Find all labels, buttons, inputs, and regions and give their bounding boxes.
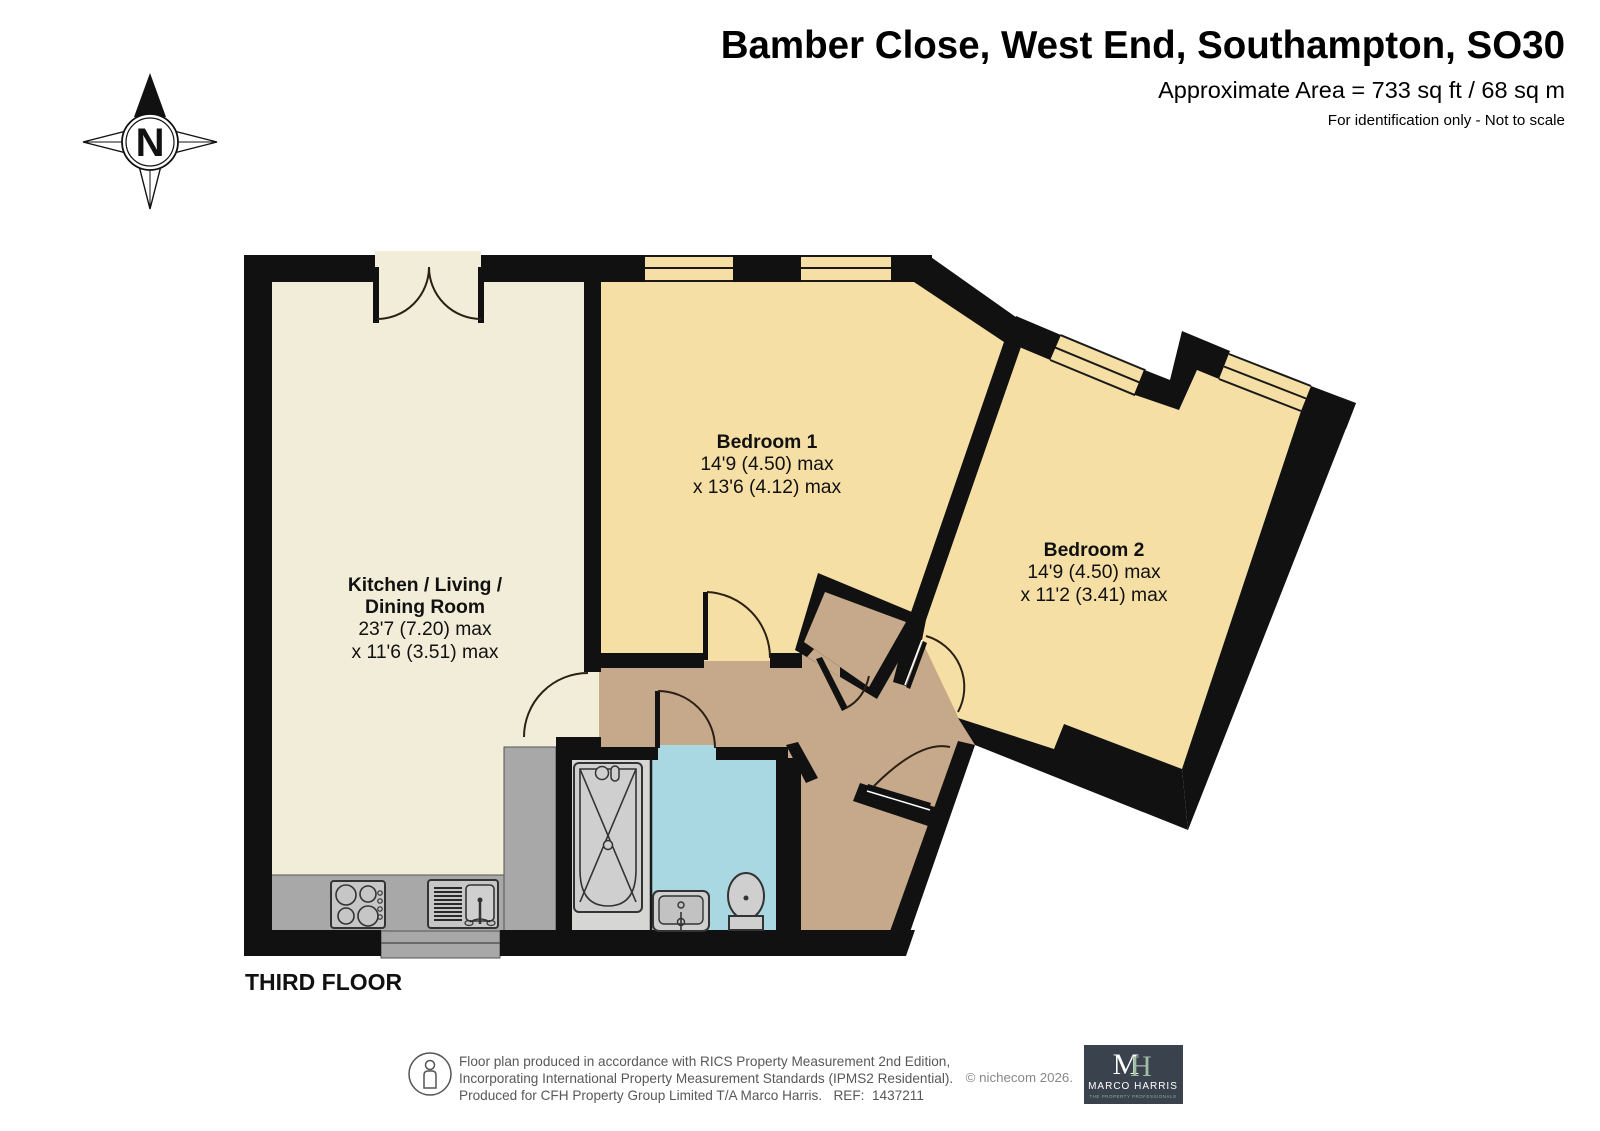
svg-text:N: N xyxy=(136,121,165,165)
svg-text:THIRD FLOOR: THIRD FLOOR xyxy=(245,969,403,995)
svg-text:x 11'2 (3.41) max: x 11'2 (3.41) max xyxy=(1021,585,1168,606)
svg-text:For identification only - Not: For identification only - Not to scale xyxy=(1328,112,1565,129)
svg-text:MARCO HARRIS: MARCO HARRIS xyxy=(1088,1081,1178,1092)
svg-text:Produced for CFH Property Grou: Produced for CFH Property Group Limited … xyxy=(459,1088,924,1103)
svg-text:Bamber Close, West End, Southa: Bamber Close, West End, Southampton, SO3… xyxy=(721,24,1565,67)
svg-text:14'9 (4.50) max: 14'9 (4.50) max xyxy=(700,454,834,475)
svg-text:Bedroom 2: Bedroom 2 xyxy=(1044,540,1145,561)
svg-text:Approximate Area = 733 sq ft /: Approximate Area = 733 sq ft / 68 sq m xyxy=(1158,77,1565,103)
svg-text:Dining Room: Dining Room xyxy=(365,597,485,618)
svg-text:14'9 (4.50) max: 14'9 (4.50) max xyxy=(1027,562,1161,583)
svg-text:x 11'6 (3.51) max: x 11'6 (3.51) max xyxy=(352,642,499,663)
svg-text:Bedroom 1: Bedroom 1 xyxy=(717,432,818,453)
svg-text:© nichecom 2026.: © nichecom 2026. xyxy=(966,1070,1073,1085)
svg-text:Floor plan produced in accorda: Floor plan produced in accordance with R… xyxy=(459,1054,950,1069)
svg-text:H: H xyxy=(1130,1050,1152,1083)
svg-text:Kitchen / Living /: Kitchen / Living / xyxy=(348,575,503,596)
svg-text:Incorporating International Pr: Incorporating International Property Mea… xyxy=(459,1071,953,1086)
svg-text:x 13'6 (4.12) max: x 13'6 (4.12) max xyxy=(693,477,842,498)
svg-text:23'7 (7.20) max: 23'7 (7.20) max xyxy=(358,619,492,640)
svg-text:THE PROPERTY PROFESSIONALS: THE PROPERTY PROFESSIONALS xyxy=(1089,1094,1176,1099)
